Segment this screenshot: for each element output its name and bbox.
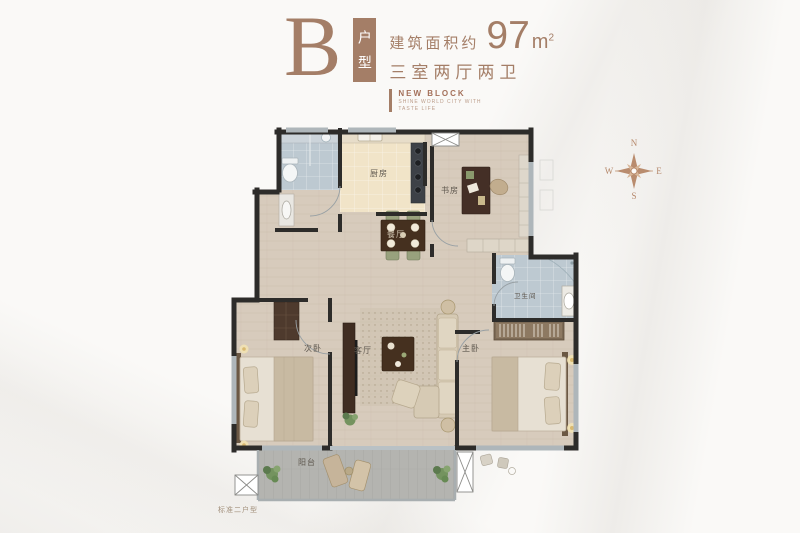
patio-items [480,454,516,475]
layout-description: 三室两厅两卫 [389,58,554,83]
room-label-dining: 餐厅 [387,230,405,239]
entry-door [432,133,459,146]
room-label-study: 书房 [441,185,459,195]
compass-icon: N E S W [603,133,665,201]
toilet [283,164,298,182]
area-unit: m2 [532,31,554,54]
compass-north: N [631,138,638,148]
exterior-marks [540,160,553,210]
toilet [501,265,515,282]
laundry-basin [282,201,291,219]
compass-east: E [656,166,662,176]
side-table [441,300,455,314]
room-label-living: 客厅 [354,345,372,355]
header: B 户型 建筑面积约 97 m2 三室两厅两卫 NEW BLOCK SHINE … [284,6,554,112]
patio-door [457,452,473,492]
wardrobe [274,302,299,340]
master-closet [494,321,564,340]
compass-west: W [605,166,614,176]
room-label-bathroom: 卫生间 [514,291,537,300]
area-line: 建筑面积约 97 m2 [389,16,554,55]
area-value: 97 [486,16,529,55]
vanity-sink [564,293,574,309]
side-door [235,475,258,495]
plan-letter: B [284,6,341,112]
room-label-balcony: 阳台 [298,457,316,467]
header-text: 建筑面积约 97 m2 三室两厅两卫 NEW BLOCK SHINE WORLD… [389,16,554,112]
floorplan-page: B 户型 建筑面积约 97 m2 三室两厅两卫 NEW BLOCK SHINE … [0,0,800,533]
floor-plan: 厨房 书房 餐厅 客厅 次卧 主卧 卫生间 阳台 [228,124,580,508]
block-caption: NEW BLOCK SHINE WORLD CITY WITH TASTE LI… [389,89,554,112]
room-label-second-bedroom: 次卧 [304,343,322,353]
room-label-master-bedroom: 主卧 [462,343,480,353]
tv-console [343,323,355,413]
side-table [441,418,455,432]
footer-caption: 标准二户型 [218,505,258,515]
room-label-kitchen: 厨房 [370,168,388,178]
plan-type-tag-label: 户型 [355,30,375,80]
compass-south: S [631,191,636,201]
block-subtitle-2: TASTE LIFE [398,106,554,112]
area-prefix: 建筑面积约 [389,32,479,53]
plan-type-tag: 户型 [353,18,376,82]
block-title: NEW BLOCK [398,89,554,98]
master-bed [492,352,577,436]
block-subtitle-1: SHINE WORLD CITY WITH [398,99,554,105]
